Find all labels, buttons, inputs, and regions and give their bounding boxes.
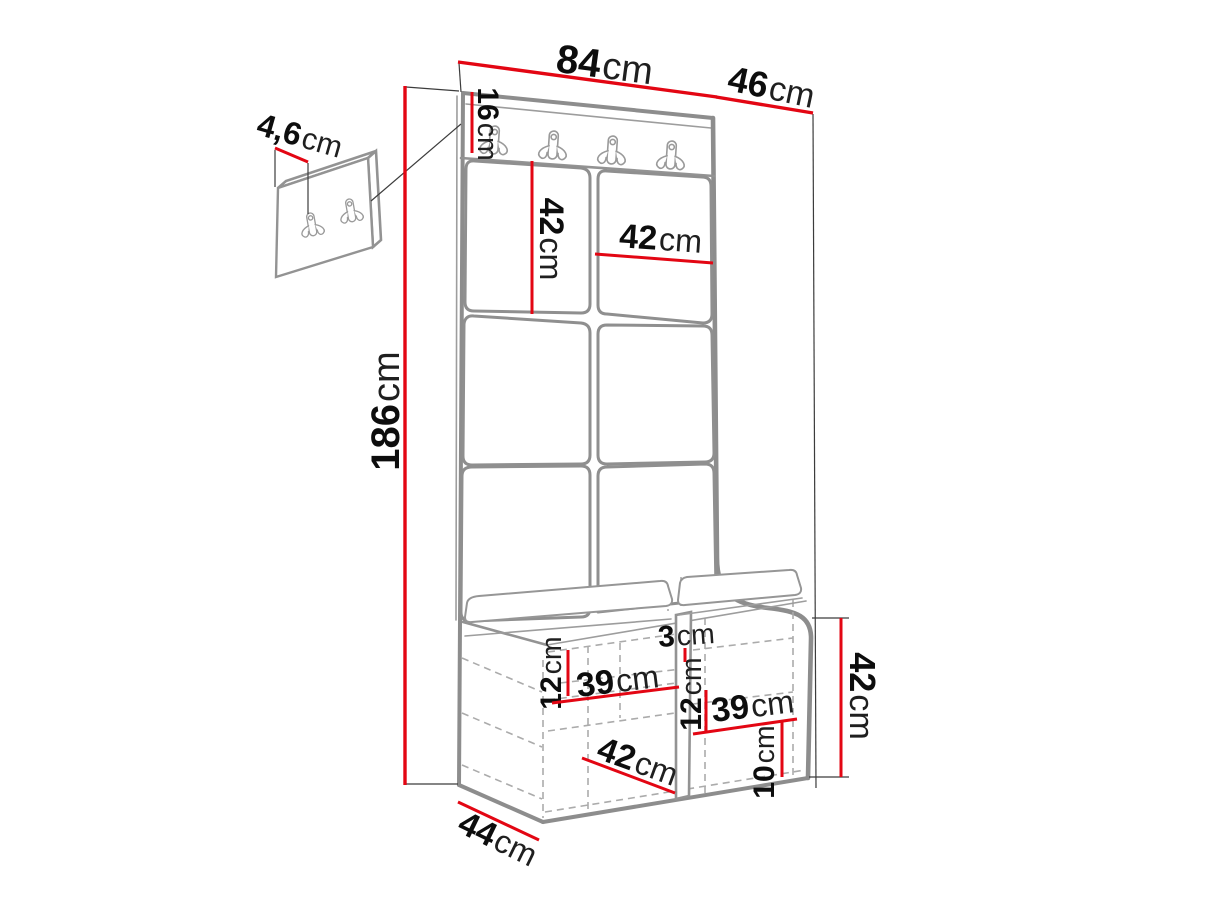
dim-shelf-gap-left: 12cm xyxy=(535,636,568,709)
dim-hook-panel-thickness: 4,6cm xyxy=(253,106,347,165)
dim-bench-depth: 44cm xyxy=(452,802,543,874)
upholstered-tile xyxy=(465,161,590,313)
dim-label-width: 84cm xyxy=(554,37,656,93)
dim-label-tile-height: 42cm xyxy=(532,198,570,281)
dim-label-shelf-gap-right: 12cm xyxy=(675,657,708,730)
dim-bench-inner-depth: 42cm xyxy=(582,730,683,794)
dimension-diagram-page: 84cm 46cm 16cm 186cm 4,6cm 42cm 42cm xyxy=(0,0,1214,911)
dim-label-bench-inner-depth: 42cm xyxy=(592,730,683,794)
bench-left-edge xyxy=(459,622,460,785)
dim-label-total-height: 186cm xyxy=(364,351,408,470)
coat-hook-icon xyxy=(656,140,685,170)
dim-top-gap: 3cm xyxy=(657,617,716,662)
dimension-diagram: 84cm 46cm 16cm 186cm 4,6cm 42cm 42cm xyxy=(0,0,1214,911)
coat-hook-icon xyxy=(538,130,567,160)
upholstered-tile xyxy=(463,316,590,465)
dim-depth: 46cm xyxy=(716,58,819,116)
dim-label-plinth-height: 10cm xyxy=(748,725,781,798)
panel-right-edge xyxy=(713,118,811,778)
dim-label-shelf-gap-left: 12cm xyxy=(535,636,568,709)
dim-plinth-height: 10cm xyxy=(748,722,782,799)
dim-label-tile-width: 42cm xyxy=(618,217,703,261)
upholstered-tile xyxy=(598,325,714,464)
dim-shelf-width-left: 39cm xyxy=(552,657,679,705)
dim-label-bench-height: 42cm xyxy=(842,652,883,740)
dim-rail-height: 16cm xyxy=(471,87,504,160)
detail-leader-line xyxy=(371,124,461,201)
dim-bench-height: 42cm xyxy=(841,618,883,777)
dim-label-hook-panel-thickness: 4,6cm xyxy=(253,106,347,165)
panel-side-edge xyxy=(456,96,457,620)
coat-hook-icon xyxy=(597,135,626,165)
dim-label-depth: 46cm xyxy=(724,58,818,116)
dim-label-rail-height: 16cm xyxy=(471,87,504,160)
dim-label-top-gap: 3cm xyxy=(657,617,716,654)
dim-shelf-gap-right: 12cm xyxy=(675,657,708,733)
